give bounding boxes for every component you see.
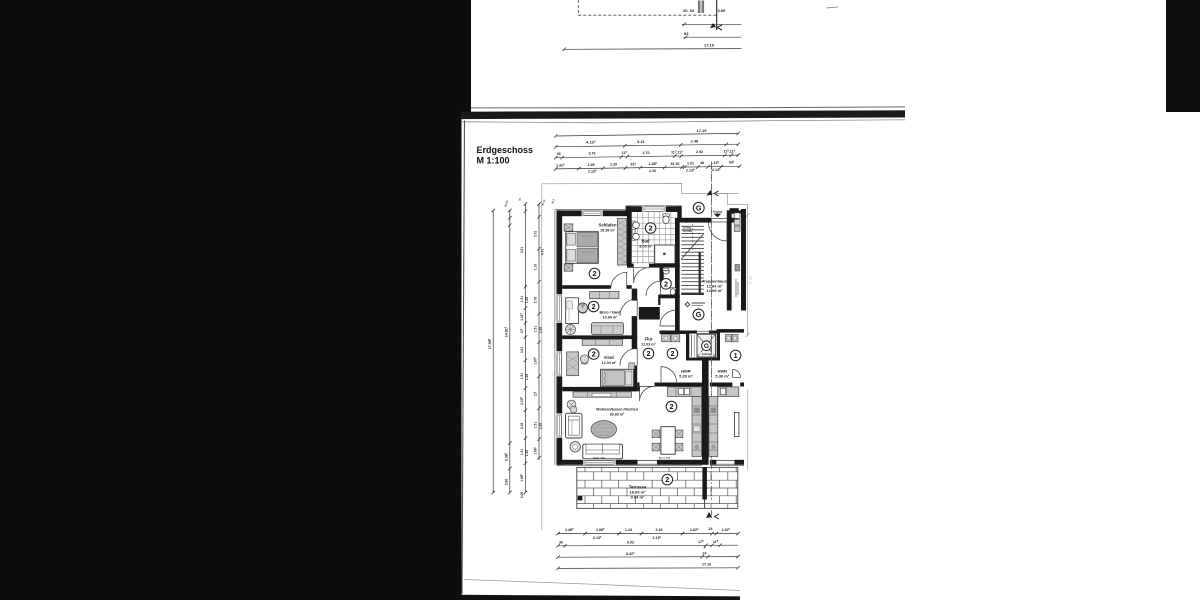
svg-text:2.26: 2.26	[656, 528, 663, 532]
svg-text:3.01: 3.01	[520, 347, 524, 353]
svg-text:17.19: 17.19	[702, 563, 711, 567]
svg-text:3.21: 3.21	[637, 139, 646, 144]
svg-text:2: 2	[592, 302, 596, 311]
svg-text:1.51: 1.51	[520, 296, 524, 302]
svg-text:9.04 m²: 9.04 m²	[631, 494, 645, 499]
svg-text:48: 48	[700, 161, 704, 165]
svg-text:1: 1	[734, 351, 738, 360]
svg-text:Büro / Gast: Büro / Gast	[600, 309, 622, 314]
svg-text:3.01: 3.01	[520, 247, 524, 253]
svg-text:11.03 m²: 11.03 m²	[641, 343, 656, 347]
svg-text:17.19: 17.19	[704, 42, 715, 47]
svg-text:Kind: Kind	[604, 355, 614, 360]
svg-text:1.01: 1.01	[687, 162, 694, 166]
svg-text:15.39 m²: 15.39 m²	[600, 228, 616, 232]
svg-text:2: 2	[593, 269, 597, 278]
svg-text:1.10: 1.10	[534, 264, 538, 270]
svg-text:2.70: 2.70	[643, 151, 650, 155]
svg-text:2.00: 2.00	[504, 479, 508, 486]
svg-text:36: 36	[557, 152, 561, 156]
svg-text:16.5/28: 16.5/28	[683, 229, 693, 233]
svg-text:G: G	[696, 203, 702, 212]
svg-text:5.30 m²: 5.30 m²	[715, 374, 729, 379]
svg-text:2: 2	[670, 402, 674, 411]
svg-text:10.94 m²: 10.94 m²	[603, 315, 619, 319]
svg-text:2.92: 2.92	[696, 150, 703, 154]
svg-text:G: G	[696, 310, 702, 319]
svg-text:Brüst. 0.95: Brüst. 0.95	[593, 456, 605, 459]
svg-text:2.48: 2.48	[691, 138, 700, 143]
svg-text:3.72: 3.72	[534, 231, 538, 237]
svg-text:4.18: 4.18	[520, 423, 524, 429]
svg-text:24: 24	[709, 527, 713, 531]
svg-text:2.06: 2.06	[520, 492, 524, 498]
svg-text:6.02: 6.02	[627, 541, 634, 545]
svg-text:1.26: 1.26	[539, 423, 543, 429]
svg-text:2: 2	[671, 349, 675, 358]
svg-text:1.26: 1.26	[525, 450, 529, 456]
svg-text:1.29: 1.29	[610, 163, 617, 167]
svg-text:1.51: 1.51	[534, 422, 538, 428]
svg-text:1.26: 1.26	[539, 327, 543, 333]
svg-text:Schlafen: Schlafen	[599, 222, 617, 227]
svg-text:1.51: 1.51	[520, 449, 524, 455]
svg-text:2: 2	[665, 475, 669, 484]
svg-text:Flur: Flur	[644, 337, 652, 342]
svg-text:1.51: 1.51	[534, 326, 538, 332]
svg-text:2: 2	[592, 350, 596, 359]
svg-text:Bad: Bad	[641, 238, 649, 243]
svg-text:2: 2	[647, 349, 651, 358]
svg-text:5.28 m²: 5.28 m²	[679, 374, 693, 379]
svg-text:1.51: 1.51	[520, 373, 524, 379]
svg-text:20, 53: 20, 53	[683, 8, 695, 13]
svg-text:2.76: 2.76	[534, 297, 538, 303]
svg-text:1.24: 1.24	[625, 528, 632, 532]
svg-text:2: 2	[649, 224, 653, 233]
svg-text:Wohnen/Essen /Küchen: Wohnen/Essen /Küchen	[596, 408, 639, 412]
svg-text:91 52: 91 52	[671, 162, 680, 166]
svg-text:M 1:100: M 1:100	[477, 156, 510, 166]
svg-text:Aufzug: Aufzug	[702, 352, 712, 356]
svg-text:8.05 m²: 8.05 m²	[639, 244, 652, 248]
svg-text:1.55: 1.55	[588, 163, 595, 167]
svg-text:Erdgeschoss: Erdgeschoss	[477, 145, 534, 155]
svg-text:1.26: 1.26	[649, 169, 656, 173]
svg-text:4.71: 4.71	[541, 249, 545, 255]
svg-text:12.08 m²: 12.08 m²	[706, 288, 723, 293]
svg-text:Brüst. 0.95: Brüst. 0.95	[659, 456, 671, 459]
svg-text:1.26: 1.26	[525, 374, 529, 380]
svg-text:G: G	[704, 343, 709, 350]
svg-text:53: 53	[684, 31, 689, 36]
svg-text:3.76: 3.76	[589, 152, 596, 156]
svg-text:2: 2	[664, 279, 668, 288]
svg-text:Eingang: Eingang	[713, 211, 723, 214]
svg-text:12.04 m²: 12.04 m²	[602, 361, 618, 365]
svg-text:17.19: 17.19	[697, 128, 708, 133]
svg-text:33.83 m²: 33.83 m²	[610, 413, 626, 417]
svg-text:24: 24	[703, 551, 707, 555]
svg-text:3.09: 3.09	[718, 8, 727, 13]
svg-text:1.26: 1.26	[525, 297, 529, 303]
